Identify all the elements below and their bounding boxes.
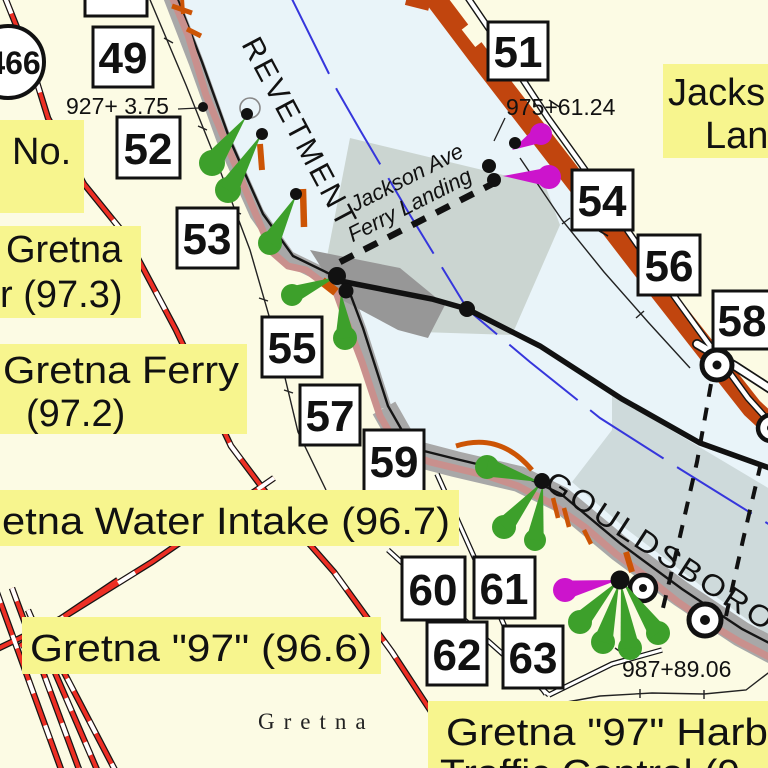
mile-box: 58 — [713, 291, 768, 349]
mooring-symbol — [758, 415, 768, 441]
mile-box: 63 — [503, 626, 563, 688]
mile-box: 51 — [488, 22, 548, 80]
mooring-symbol — [702, 350, 732, 380]
svg-text:No.: No. — [12, 131, 71, 173]
mile-box: 57 — [300, 385, 360, 445]
label-gretna-97: Gretna "97" (96.6) — [22, 617, 381, 674]
label-water-intake: etna Water Intake (96.7) — [0, 490, 459, 546]
svg-text:Gretna: Gretna — [6, 229, 123, 271]
navigation-chart: REVETMENT GOULDSBORO Jackson Ave Ferry L… — [0, 0, 768, 768]
svg-text:Lan: Lan — [705, 115, 768, 157]
svg-text:55: 55 — [268, 324, 317, 373]
svg-text:58: 58 — [718, 297, 767, 346]
svg-text:Gretna "97" Harb: Gretna "97" Harb — [446, 712, 768, 754]
svg-text:49: 49 — [99, 34, 148, 83]
svg-text:Traffic Control (9: Traffic Control (9 — [440, 753, 740, 768]
label-jackson-landing: Jacks Lan — [663, 64, 768, 158]
mile-box: 56 — [638, 235, 700, 295]
svg-text:60: 60 — [409, 566, 458, 615]
label-gretna-ferry: Gretna Ferry (97.2) — [0, 344, 247, 435]
svg-text:63: 63 — [509, 634, 558, 683]
town-name: Gretna — [258, 709, 375, 734]
svg-text:466: 466 — [0, 45, 41, 81]
svg-text:51: 51 — [494, 28, 543, 77]
mile-box: 55 — [262, 317, 322, 377]
svg-text:54: 54 — [578, 177, 627, 226]
label-gretna-upper: Gretna r (97.3) — [0, 226, 141, 318]
mile-box: 62 — [427, 622, 487, 685]
station-927: 927+ 3.75 — [66, 93, 169, 119]
mile-box: 61 — [474, 557, 535, 618]
mile-box: 60 — [402, 557, 465, 620]
svg-text:Gretna Ferry: Gretna Ferry — [3, 350, 239, 392]
svg-text:52: 52 — [124, 125, 173, 174]
mile-box: 49 — [93, 27, 153, 87]
svg-text:61: 61 — [480, 565, 529, 614]
mile-box-cut — [85, 0, 147, 16]
svg-text:59: 59 — [370, 438, 419, 487]
svg-text:53: 53 — [183, 215, 232, 264]
mile-box: 52 — [117, 117, 180, 178]
label-harbor-control: Gretna "97" Harb Traffic Control (9 — [428, 701, 768, 768]
mile-box: 54 — [572, 170, 633, 230]
station-987: 987+89.06 — [622, 656, 731, 682]
label-no: No. — [0, 120, 84, 213]
svg-text:62: 62 — [433, 631, 482, 680]
mooring-symbol — [689, 604, 721, 636]
svg-text:(97.2): (97.2) — [26, 393, 125, 435]
mile-box: 59 — [364, 430, 424, 492]
chart-canvas: REVETMENT GOULDSBORO Jackson Ave Ferry L… — [0, 0, 768, 768]
svg-text:Jacks: Jacks — [668, 72, 765, 114]
svg-text:57: 57 — [306, 392, 355, 441]
station-975: 975+61.24 — [506, 94, 616, 120]
svg-text:r (97.3): r (97.3) — [0, 274, 122, 316]
svg-text:56: 56 — [645, 242, 694, 291]
svg-text:etna Water Intake (96.7): etna Water Intake (96.7) — [2, 501, 450, 543]
mile-box: 53 — [177, 208, 238, 268]
svg-text:Gretna "97" (96.6): Gretna "97" (96.6) — [30, 628, 372, 670]
